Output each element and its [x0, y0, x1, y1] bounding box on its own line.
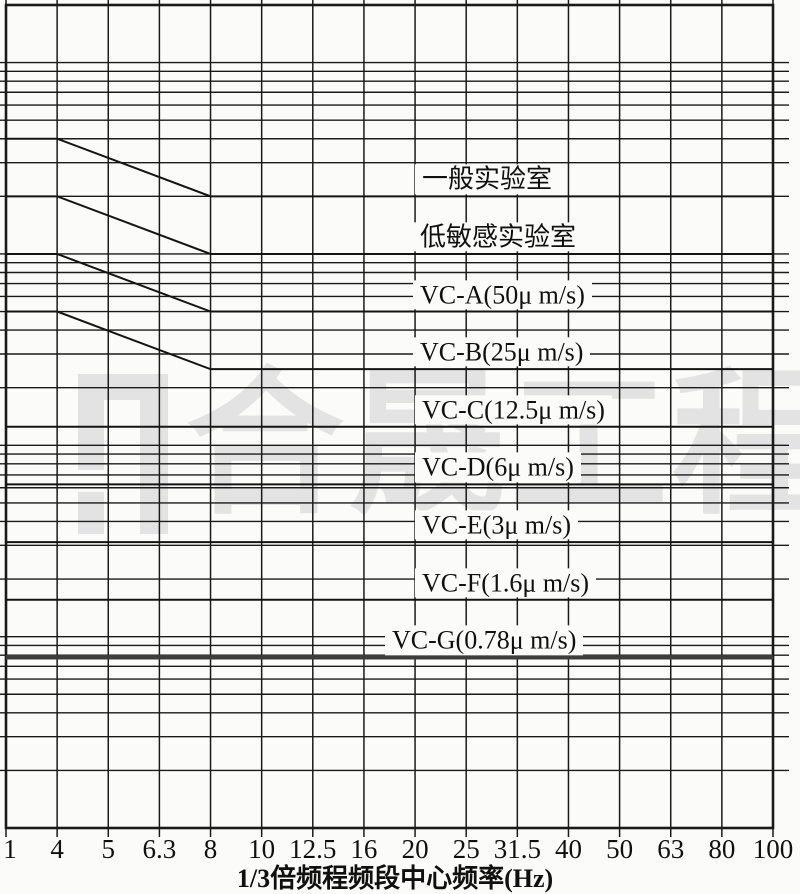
curve-label-vc-d: VC-D(6μ m/s): [415, 453, 581, 482]
curve-label-vc-g: VC-G(0.78μ m/s): [385, 626, 583, 655]
x-tick-label-50: 50: [606, 834, 633, 865]
vc-curves-chart: 合晟工程 一般实验室低敏感实验室VC-A(50μ m/s)VC-B(25μ m/…: [0, 0, 800, 894]
x-tick-label-5: 5: [102, 834, 116, 865]
curve-vc-b: [6, 312, 773, 370]
x-tick-label-1: 1: [3, 834, 17, 865]
x-axis-title: 1/3倍频程频段中心频率(Hz): [237, 858, 553, 894]
curve-label-general-laboratory: 一般实验室: [415, 165, 559, 194]
x-tick-label-6.3: 6.3: [143, 834, 177, 865]
curve-general-laboratory: [6, 139, 773, 197]
x-tick-label-100: 100: [753, 834, 794, 865]
x-tick-label-40: 40: [555, 834, 582, 865]
x-tick-label-63: 63: [657, 834, 684, 865]
plot-border: [6, 5, 773, 828]
curve-label-vc-a: VC-A(50μ m/s): [413, 280, 592, 309]
x-tick-label-8: 8: [204, 834, 218, 865]
chart-grid: [0, 0, 800, 894]
curve-label-vc-e: VC-E(3μ m/s): [415, 510, 578, 539]
plot-border-rect: [6, 5, 773, 828]
curve-label-vc-b: VC-B(25μ m/s): [413, 337, 590, 366]
curve-label-vc-f: VC-F(1.6μ m/s): [415, 568, 596, 597]
x-tick-label-4: 4: [50, 834, 64, 865]
curve-label-vc-c: VC-C(12.5μ m/s): [415, 395, 612, 424]
vertical-gridlines: [6, 0, 773, 837]
curve-label-low-sensitivity-laboratory: 低敏感实验室: [413, 222, 583, 251]
x-tick-label-80: 80: [708, 834, 735, 865]
curve-low-sensitivity-laboratory: [6, 196, 773, 254]
